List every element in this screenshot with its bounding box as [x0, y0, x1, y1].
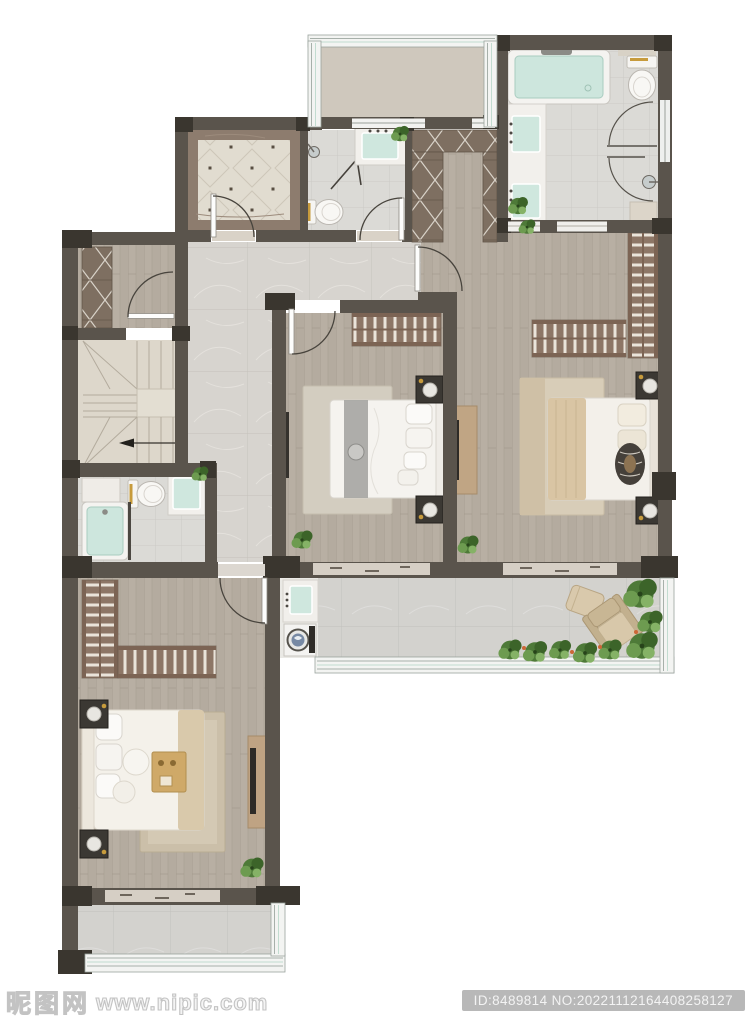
sink	[290, 586, 312, 614]
tv	[250, 748, 256, 814]
floor-plan	[0, 0, 754, 1024]
bath-cabinet	[82, 478, 120, 502]
wardrobe	[412, 152, 443, 242]
watermark-site-url: www.nipic.com	[96, 990, 268, 1015]
hallway-upper-floor	[272, 242, 421, 300]
rug-stripe	[520, 378, 545, 515]
bed-medallion	[348, 444, 364, 460]
cloak-wardrobe	[82, 247, 112, 328]
floor-plan-image	[0, 0, 754, 1024]
bay-window-floor	[321, 47, 484, 117]
shower-glass	[128, 502, 131, 560]
pillow	[404, 452, 426, 469]
pillow	[406, 404, 432, 424]
watermark-site-name: 昵图网	[6, 990, 90, 1018]
wardrobe	[118, 646, 216, 678]
round-cushion	[113, 781, 135, 803]
pillow	[406, 428, 432, 448]
bed-blanket	[548, 398, 586, 500]
laundry	[283, 580, 318, 656]
pillow	[96, 744, 122, 770]
toilet-icon	[629, 70, 656, 100]
pillow	[618, 404, 646, 426]
wardrobe	[483, 152, 497, 242]
round-cushion	[123, 749, 149, 775]
toilet-tank	[627, 56, 657, 68]
detergent-bottle	[309, 626, 315, 653]
sink	[512, 116, 540, 152]
cushion	[398, 470, 418, 485]
watermark: 昵图网www.nipic.com	[6, 984, 268, 1020]
balcony-floor	[78, 905, 271, 956]
sink	[173, 478, 200, 509]
wardrobe	[412, 130, 497, 152]
image-id-badge: ID:8489814 NO:20221112164408258127	[462, 990, 745, 1011]
